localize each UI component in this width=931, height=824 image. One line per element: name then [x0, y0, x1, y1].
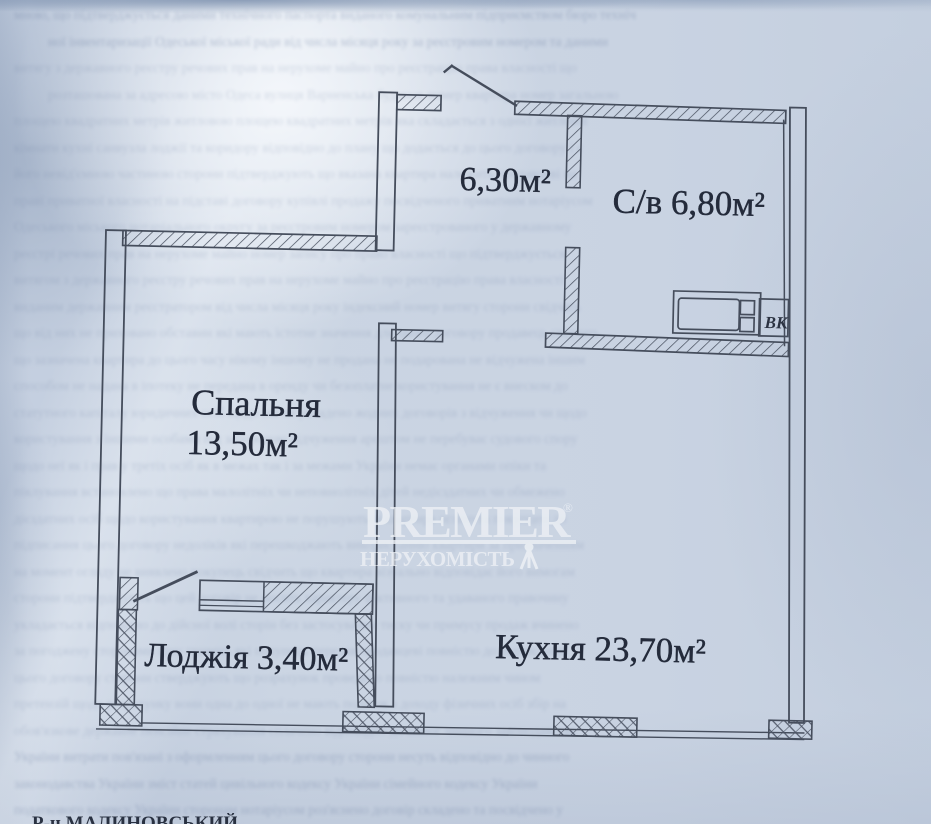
svg-text:С/в 6,80м²: С/в 6,80м²	[612, 182, 765, 224]
svg-text:PREMIER: PREMIER	[363, 496, 572, 547]
svg-text:Спальня: Спальня	[191, 382, 322, 425]
svg-text:НЕРУХОМІСТЬ: НЕРУХОМІСТЬ	[360, 547, 515, 571]
svg-text:Лоджія 3,40м²: Лоджія 3,40м²	[144, 637, 349, 679]
svg-text:Кухня 23,70м²: Кухня 23,70м²	[495, 627, 707, 671]
svg-text:13,50м²: 13,50м²	[186, 423, 298, 465]
svg-text:6,30м²: 6,30м²	[459, 161, 551, 200]
svg-text:ВК: ВК	[763, 313, 789, 333]
svg-text:®: ®	[563, 500, 573, 515]
